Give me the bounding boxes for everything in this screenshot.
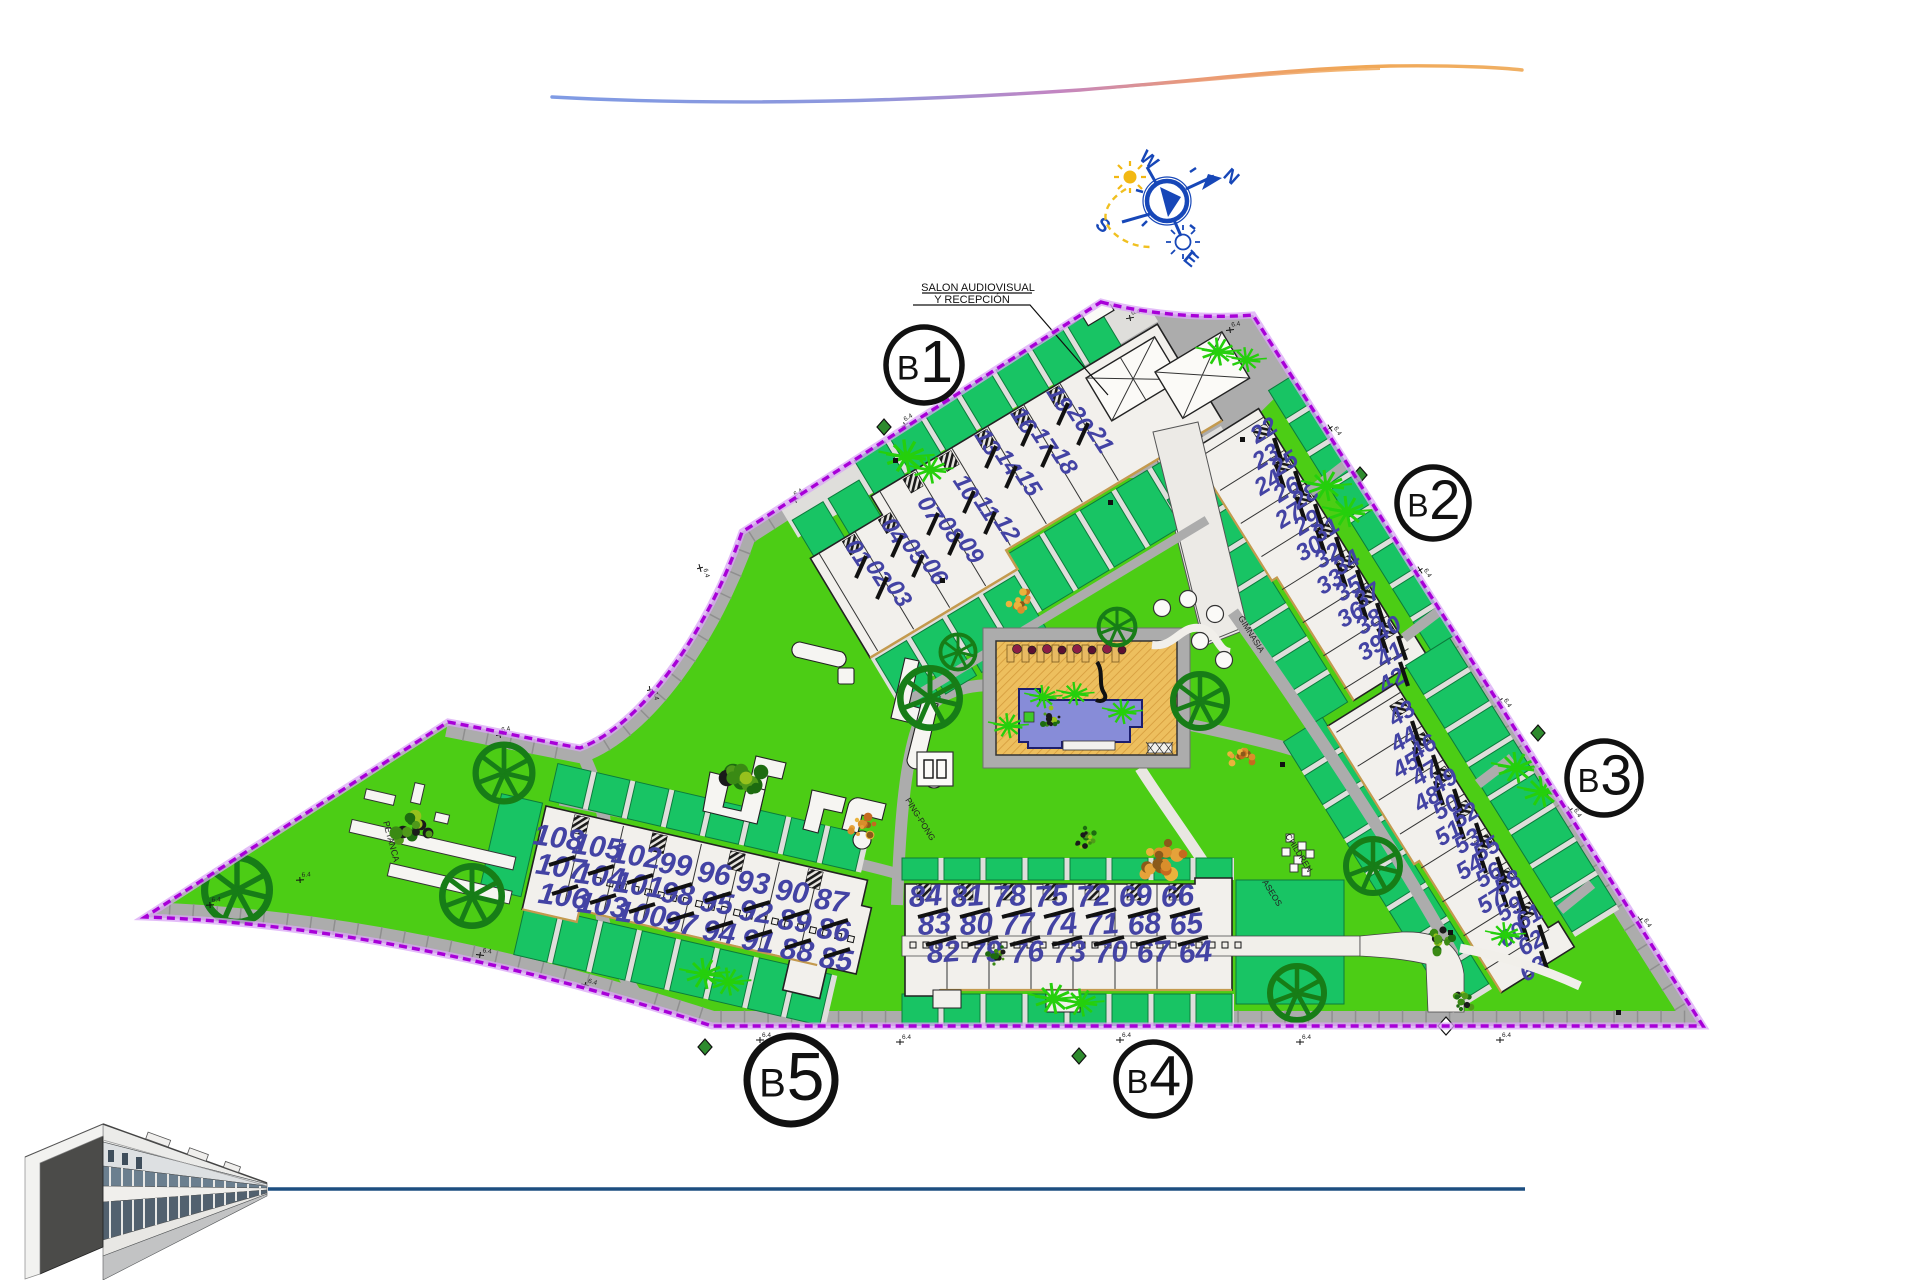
svg-text:6.4: 6.4 <box>1502 1032 1511 1039</box>
svg-text:6.4: 6.4 <box>1231 320 1241 328</box>
svg-text:B: B <box>1126 1063 1148 1100</box>
svg-text:2: 2 <box>1429 468 1460 531</box>
svg-text:6.4: 6.4 <box>1122 1032 1131 1039</box>
svg-text:85: 85 <box>817 941 856 979</box>
svg-text:Y RECEPCIÓN: Y RECEPCIÓN <box>934 293 1010 306</box>
svg-text:88: 88 <box>778 932 816 969</box>
svg-text:B: B <box>1577 762 1599 799</box>
svg-text:1: 1 <box>920 329 953 395</box>
svg-text:6.4: 6.4 <box>1302 1034 1311 1041</box>
svg-text:6.4: 6.4 <box>301 871 311 879</box>
svg-text:97: 97 <box>661 905 700 943</box>
svg-text:6.4: 6.4 <box>482 947 492 955</box>
svg-text:B: B <box>759 1062 786 1106</box>
svg-text:91: 91 <box>739 923 777 960</box>
svg-text:4: 4 <box>1149 1045 1181 1109</box>
svg-text:5: 5 <box>787 1039 825 1115</box>
svg-text:B: B <box>897 349 920 387</box>
svg-text:SALON AUDIOVISUAL: SALON AUDIOVISUAL <box>921 282 1035 294</box>
svg-text:3: 3 <box>1600 744 1632 808</box>
svg-text:94: 94 <box>700 914 738 951</box>
svg-text:6.4: 6.4 <box>211 896 221 904</box>
svg-text:6.4: 6.4 <box>902 1034 911 1041</box>
svg-text:B: B <box>1407 488 1428 524</box>
